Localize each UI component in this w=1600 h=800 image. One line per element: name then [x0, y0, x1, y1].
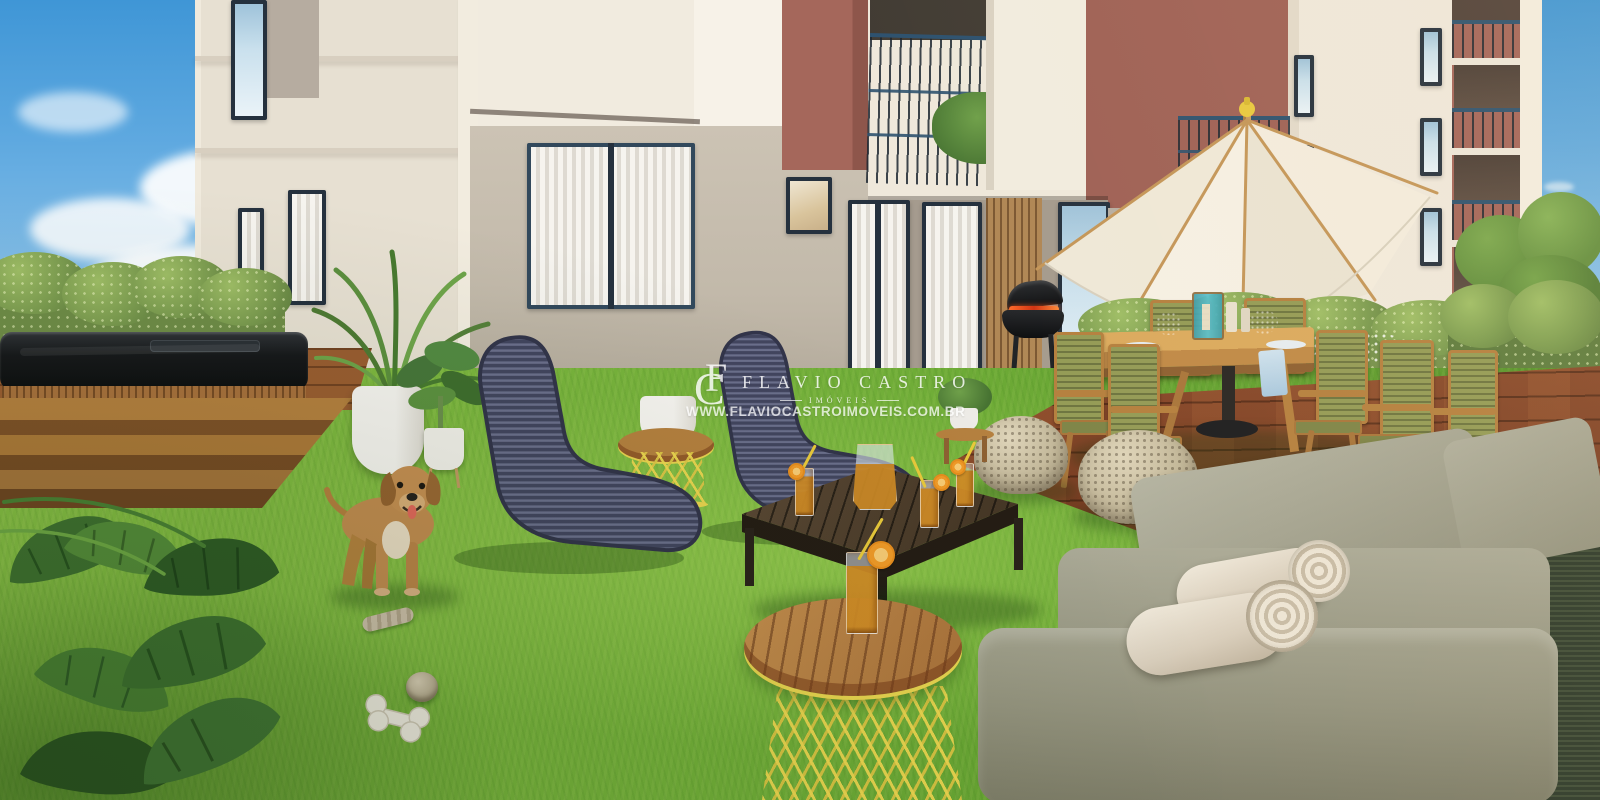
- napkin: [1258, 349, 1288, 397]
- balcony-slab: [1450, 58, 1524, 65]
- facade-ledge: [195, 148, 480, 153]
- balcony-opening: [1454, 154, 1520, 200]
- balcony-railing: [1452, 20, 1522, 62]
- hedge-far-right: [1508, 280, 1600, 354]
- balcony-railing: [1452, 108, 1522, 152]
- wood-stool-leg: [982, 436, 987, 462]
- brand-url: WWW.FLAVIOCASTROIMOVEIS.COM.BR: [686, 404, 965, 419]
- balcony-slab: [1450, 148, 1524, 155]
- candle-lantern: [1192, 292, 1224, 340]
- candle: [1226, 302, 1237, 332]
- hedge-left: [198, 268, 292, 326]
- watermark: C F FLAVIO CASTRO IMÓVEIS WWW.FLAVIOCAST…: [684, 338, 914, 422]
- pitcher: [853, 444, 897, 510]
- facade-accent-panel: [267, 0, 319, 98]
- window-curtained: [527, 143, 695, 309]
- balcony-opening: [1452, 0, 1522, 20]
- candle: [1241, 308, 1250, 332]
- cloud: [1544, 182, 1574, 192]
- architectural-render: C F FLAVIO CASTRO IMÓVEIS WWW.FLAVIOCAST…: [0, 0, 1600, 800]
- bone-toy: [356, 692, 436, 748]
- table-pedestal-base: [1196, 420, 1258, 438]
- rope-lounge-chair: [448, 330, 710, 575]
- hot-tub: [0, 332, 308, 390]
- window-small: [786, 177, 832, 234]
- balcony-opening: [1454, 62, 1520, 108]
- terracotta-panel: [782, 0, 870, 170]
- window: [231, 0, 267, 120]
- tower-window: [1420, 28, 1442, 86]
- coffee-table-leg: [1014, 518, 1023, 570]
- hot-tub-gloss: [20, 344, 260, 356]
- blue-glass-jar: [1250, 310, 1278, 334]
- patio-door: [922, 202, 982, 390]
- iced-tea-glass: [846, 552, 878, 634]
- cloud: [18, 92, 128, 132]
- iced-tea-glass: [956, 463, 974, 507]
- iced-tea-glass: [795, 468, 814, 516]
- coffee-table-leg: [745, 528, 754, 586]
- wood-stool-leg: [944, 438, 949, 464]
- monstera-foliage: [0, 462, 346, 800]
- rolled-towel-end: [1246, 580, 1318, 652]
- brand-logo-monogram: C F: [694, 358, 734, 410]
- table-pedestal: [1222, 366, 1235, 428]
- blue-glass-jar: [1156, 312, 1182, 335]
- iced-tea-glass: [920, 480, 939, 528]
- wire-table-base: [762, 686, 962, 800]
- logo-letter-f: F: [705, 358, 727, 398]
- fascia: [694, 0, 788, 136]
- knitted-pouf: [974, 416, 1068, 494]
- brand-name: FLAVIO CASTRO: [742, 372, 972, 393]
